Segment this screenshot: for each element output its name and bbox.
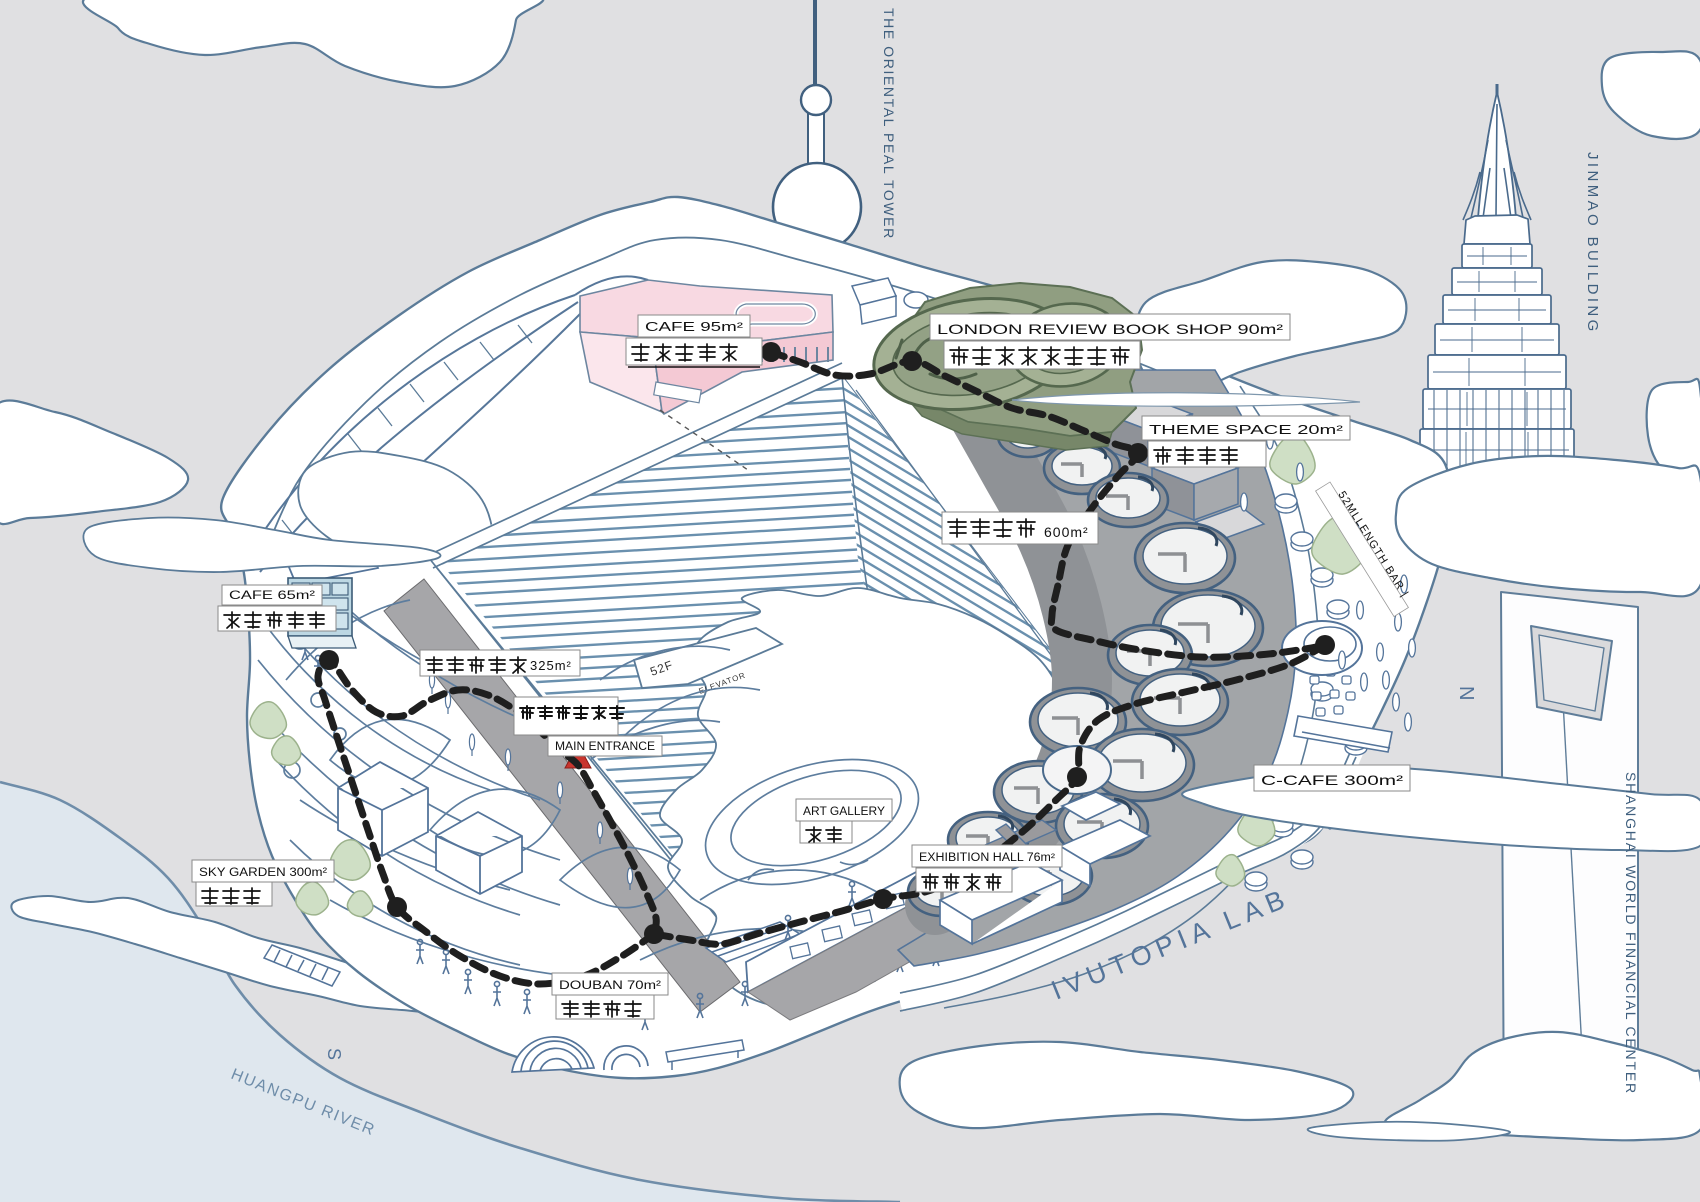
svg-text:THEME SPACE 20m²: THEME SPACE 20m² bbox=[1149, 422, 1344, 437]
svg-text:N: N bbox=[1455, 686, 1477, 700]
svg-text:325m²: 325m² bbox=[530, 658, 572, 673]
svg-text:600m²: 600m² bbox=[1044, 524, 1089, 540]
svg-text:MAIN ENTRANCE: MAIN ENTRANCE bbox=[555, 739, 655, 753]
svg-text:DOUBAN 70m²: DOUBAN 70m² bbox=[559, 978, 661, 992]
svg-text:SHANGHAI WORLD FINANCIAL CENTE: SHANGHAI WORLD FINANCIAL CENTER bbox=[1623, 772, 1639, 1095]
svg-text:CAFE 65m²: CAFE 65m² bbox=[229, 588, 315, 602]
svg-text:EXHIBITION HALL 76m²: EXHIBITION HALL 76m² bbox=[919, 852, 1055, 864]
svg-text:S: S bbox=[324, 1048, 344, 1060]
svg-text:SKY GARDEN 300m²: SKY GARDEN 300m² bbox=[199, 865, 327, 879]
svg-text:CAFE 95m²: CAFE 95m² bbox=[645, 319, 744, 334]
svg-text:THE ORIENTAL PEAL TOWER: THE ORIENTAL PEAL TOWER bbox=[881, 8, 897, 240]
svg-text:ART GALLERY: ART GALLERY bbox=[803, 804, 885, 818]
svg-text:JINMAO BUILDING: JINMAO BUILDING bbox=[1584, 152, 1601, 335]
svg-text:C-CAFE 300m²: C-CAFE 300m² bbox=[1261, 772, 1403, 788]
svg-text:LONDON REVIEW BOOK SHOP 90m²: LONDON REVIEW BOOK SHOP 90m² bbox=[937, 321, 1283, 337]
